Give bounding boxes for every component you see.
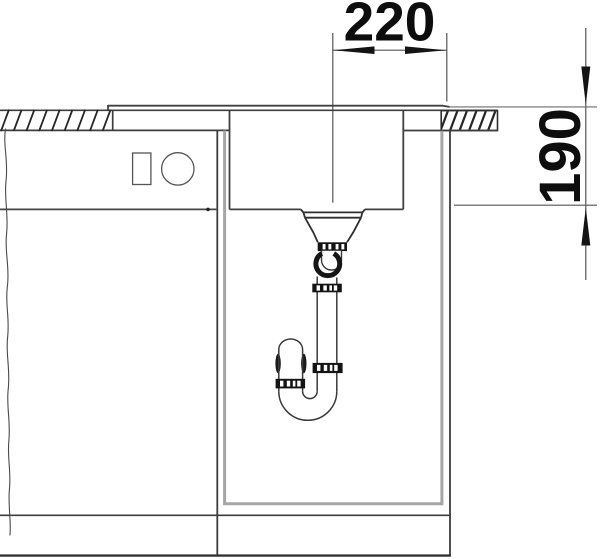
svg-text:220: 220 bbox=[344, 0, 436, 52]
svg-text:190: 190 bbox=[528, 108, 593, 205]
